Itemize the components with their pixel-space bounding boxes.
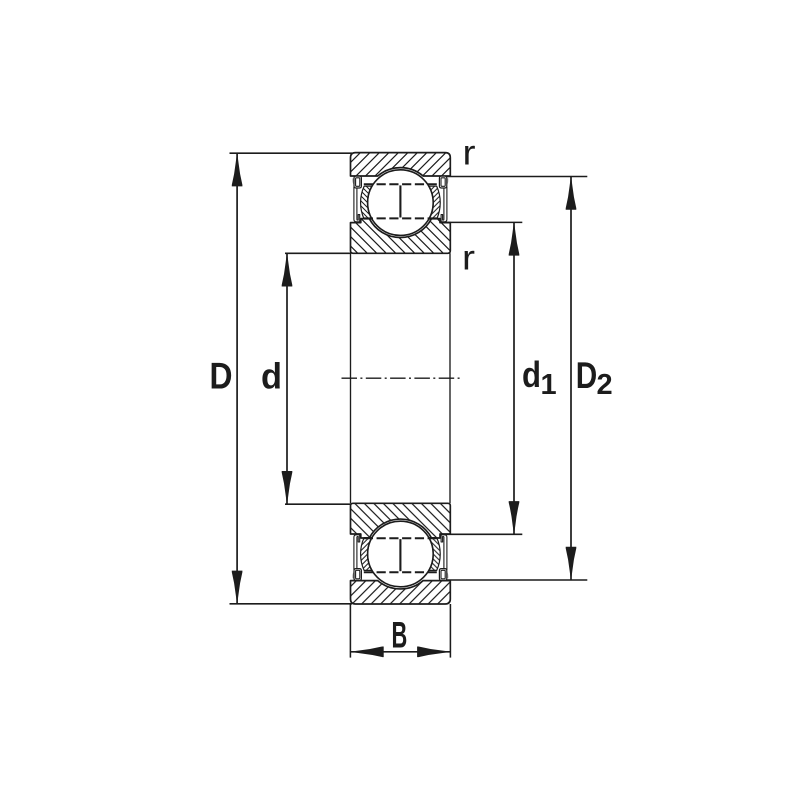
svg-text:B: B: [392, 613, 408, 655]
svg-text:D: D: [576, 355, 598, 396]
svg-text:2: 2: [597, 369, 613, 401]
svg-text:d: d: [522, 354, 541, 395]
svg-text:1: 1: [541, 369, 557, 401]
svg-text:d: d: [261, 356, 282, 397]
svg-text:r: r: [462, 239, 475, 278]
svg-text:D: D: [210, 356, 233, 397]
svg-text:r: r: [463, 134, 476, 173]
